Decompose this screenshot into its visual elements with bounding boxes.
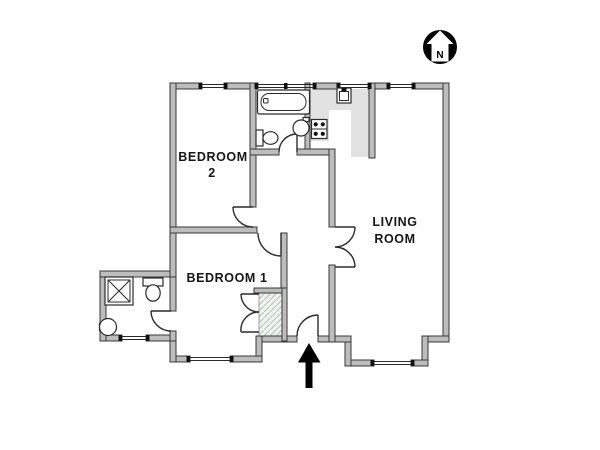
washbasin xyxy=(293,118,309,137)
wall xyxy=(170,227,257,233)
closet-hatch xyxy=(259,292,283,336)
bedroom2-label-line1: BEDROOM xyxy=(178,150,247,164)
bathroom-door-arc xyxy=(279,134,297,152)
wall xyxy=(170,341,176,362)
bedroom1-door-arc xyxy=(258,233,281,256)
floor-plan-drawing: BEDROOM 2 BEDROOM 1 LIVING ROOM N xyxy=(0,0,600,450)
compass-n-label: N xyxy=(436,50,443,61)
closet-double-door xyxy=(241,294,259,332)
kitchen-sink xyxy=(337,88,351,103)
wall xyxy=(329,149,335,227)
bathroom2-door-arc xyxy=(151,311,171,331)
wall xyxy=(170,331,176,341)
wall xyxy=(282,288,287,341)
window xyxy=(187,356,234,362)
wall xyxy=(170,277,176,311)
shower xyxy=(105,277,133,305)
living-room-double-door xyxy=(335,227,355,267)
bedroom1-label: BEDROOM 1 xyxy=(186,271,267,285)
wall xyxy=(443,83,449,342)
wall xyxy=(170,83,176,277)
wall xyxy=(369,83,375,158)
window xyxy=(371,360,415,366)
entrance-arrow-icon xyxy=(298,343,321,388)
window xyxy=(199,83,228,89)
bedroom2-door-arc xyxy=(233,207,253,227)
wall xyxy=(250,83,256,207)
wall xyxy=(100,271,176,277)
window xyxy=(387,83,416,89)
wall xyxy=(230,356,262,362)
wall xyxy=(329,265,335,342)
bathtub xyxy=(258,90,310,114)
washbasin xyxy=(100,319,117,336)
wall xyxy=(297,149,334,155)
wall xyxy=(250,149,279,155)
wall xyxy=(259,336,297,342)
wall xyxy=(313,83,340,89)
stove xyxy=(312,120,328,139)
compass-north-icon: N xyxy=(423,30,457,64)
toilet xyxy=(256,130,278,146)
entrance-door-arc xyxy=(297,315,318,336)
wall xyxy=(281,233,287,289)
living-room-label-line2: ROOM xyxy=(374,232,415,246)
living-room-label-line1: LIVING xyxy=(372,215,417,229)
floor-plan: BEDROOM 2 BEDROOM 1 LIVING ROOM N xyxy=(0,0,600,450)
window xyxy=(119,335,150,341)
bedroom2-label-line2: 2 xyxy=(208,166,216,180)
toilet xyxy=(143,278,163,301)
